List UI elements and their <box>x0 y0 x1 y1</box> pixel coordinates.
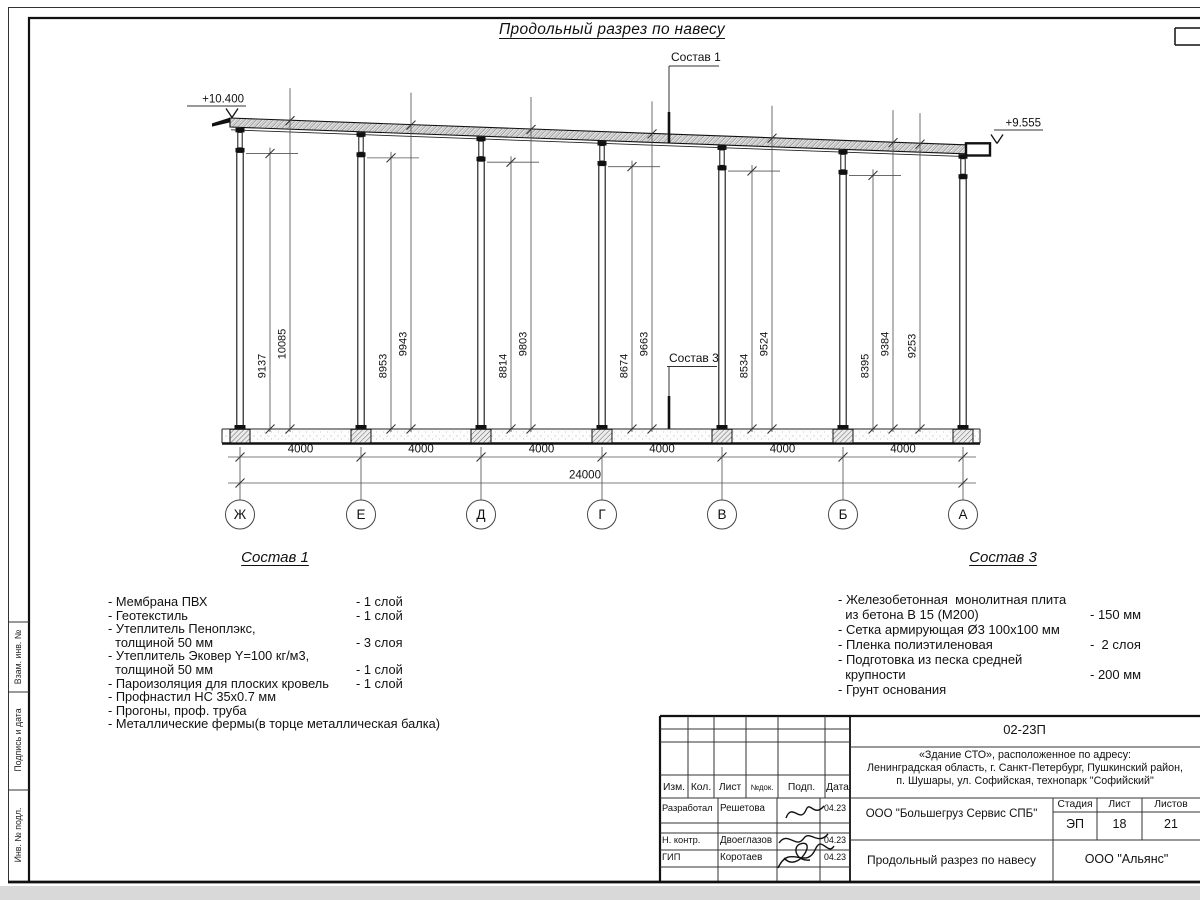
composition-3-title: Состав 3 <box>933 549 1073 566</box>
composition-item-name: - Геотекстиль <box>108 609 478 623</box>
composition-item: - Профнастил НС 35х0.7 мм <box>108 690 478 704</box>
axis-letter: Е <box>356 507 365 522</box>
stamp-column-header: Лист <box>714 779 746 796</box>
bay-dimension-label: 4000 <box>288 444 314 456</box>
axis-letter: Б <box>839 507 848 522</box>
column <box>599 166 605 429</box>
leader-label-sostav1: Состав 1 <box>671 50 721 64</box>
composition-item-name: - Металлические фермы(в торце металличес… <box>108 717 478 731</box>
column <box>237 152 243 429</box>
stamp-column-header: Подп. <box>778 779 825 796</box>
stamp-object-address: «Здание СТО», расположенное по адресу: Л… <box>852 749 1198 788</box>
bay-dimension-label: 4000 <box>408 444 434 456</box>
composition-item: - Железобетонная монолитная плита из бет… <box>838 592 1188 622</box>
elevation-mark-right: +9.555 <box>1006 118 1042 130</box>
composition-item: - Грунт основания <box>838 682 1188 697</box>
footing <box>351 429 371 443</box>
stamp-column-header: №док. <box>746 779 778 796</box>
composition-item: - Пароизоляция для плоских кровель- 1 сл… <box>108 677 478 691</box>
stamp-object-line: п. Шушары, ул. Софийская, технопарк "Соф… <box>852 775 1198 788</box>
composition-item: - Прогоны, проф. труба <box>108 704 478 718</box>
vertical-dimension-label: 8534 <box>739 354 751 378</box>
vertical-dimension-label: 9943 <box>398 332 410 356</box>
composition-item-name: - Грунт основания <box>838 682 1188 697</box>
bay-dimension-label: 4000 <box>649 444 675 456</box>
footing <box>471 429 491 443</box>
stamp-row-date: 04.23 <box>821 835 849 845</box>
composition-item-qty: - 1 слой <box>356 595 403 609</box>
composition-item-qty: - 200 мм <box>1090 667 1141 682</box>
page-title: Продольный разрез по навесу <box>390 21 834 39</box>
column <box>960 179 966 429</box>
stamp-row-role: Разработал <box>662 803 717 813</box>
stamp-object-line: «Здание СТО», расположенное по адресу: <box>852 749 1198 762</box>
stamp-drawing-name: Продольный разрез по навесу <box>850 853 1053 867</box>
composition-item-name: - Прогоны, проф. труба <box>108 704 478 718</box>
axis-letter: А <box>958 507 967 522</box>
roof-package <box>230 118 968 154</box>
margin-label-vzam-inv: Взам. инв. № <box>9 624 28 690</box>
composition-item: - Сетка армирующая Ø3 100х100 мм <box>838 622 1188 637</box>
composition-item: - Подготовка из песка средней крупности-… <box>838 652 1188 682</box>
roof-eave <box>212 118 230 127</box>
stamp-column-header: Кол. <box>688 779 714 796</box>
stamp-sheets-label: Листов <box>1142 799 1200 810</box>
stamp-column-header: Дата <box>825 779 850 796</box>
vertical-dimension-label: 9663 <box>639 332 651 356</box>
composition-1-block: Состав 1 - Мембрана ПВХ- 1 слой- Геотекс… <box>108 549 478 731</box>
footing <box>953 429 973 443</box>
elevation-mark-left: +10.400 <box>202 94 244 106</box>
footing <box>230 429 250 443</box>
vertical-dimension-label: 9253 <box>907 334 919 358</box>
composition-1-list: - Мембрана ПВХ- 1 слой- Геотекстиль- 1 с… <box>108 595 478 731</box>
vertical-dimension-label: 8395 <box>860 354 872 378</box>
stamp-column-header: Изм. <box>660 779 688 796</box>
vertical-dimension-label: 8814 <box>498 354 510 378</box>
composition-item-name: - Мембрана ПВХ <box>108 595 478 609</box>
composition-item-qty: - 3 слоя <box>356 636 403 650</box>
composition-item: - Металлические фермы(в торце металличес… <box>108 717 478 731</box>
composition-item-qty: - 1 слой <box>356 677 403 691</box>
composition-item-qty: - 150 мм <box>1090 607 1141 622</box>
stamp-row-date: 04.23 <box>821 803 849 813</box>
composition-item: - Геотекстиль- 1 слой <box>108 609 478 623</box>
axis-letter: Г <box>598 507 606 522</box>
vertical-dimension-label: 8953 <box>378 354 390 378</box>
composition-3-block: Состав 3 - Железобетонная монолитная пли… <box>838 549 1188 697</box>
footing <box>833 429 853 443</box>
composition-item-qty: - 1 слой <box>356 663 403 677</box>
vertical-dimension-label: 9137 <box>257 354 269 378</box>
vertical-dimension-label: 9384 <box>880 332 892 356</box>
outside-page-area <box>0 886 1200 900</box>
composition-item: - Утеплитель Пеноплэкс, толщиной 50 мм- … <box>108 622 478 649</box>
composition-item-name: - Пароизоляция для плоских кровель <box>108 677 478 691</box>
drawing-sheet: +10.400+9.555Состав 1Состав 391371008589… <box>0 0 1200 900</box>
stamp-row-role: Н. контр. <box>662 835 717 845</box>
axis-letter: В <box>717 507 726 522</box>
stamp-company: ООО "Большегруз Сервис СПБ" <box>850 808 1053 820</box>
vertical-dimension-label: 9803 <box>518 332 530 356</box>
column <box>719 170 725 429</box>
composition-item: - Утеплитель Эковер Y=100 кг/м3, толщино… <box>108 649 478 676</box>
column <box>358 157 364 429</box>
composition-1-title: Состав 1 <box>205 549 345 566</box>
composition-item-name: - Профнастил НС 35х0.7 мм <box>108 690 478 704</box>
composition-3-list: - Железобетонная монолитная плита из бет… <box>838 592 1188 697</box>
composition-item-name: - Утеплитель Пеноплэкс, толщиной 50 мм <box>108 622 478 649</box>
signature <box>784 843 810 862</box>
composition-item-name: - Сетка армирующая Ø3 100х100 мм <box>838 622 1188 637</box>
stamp-row-role: ГИП <box>662 852 717 862</box>
margin-label-podpis-data: Подпись и дата <box>9 694 28 786</box>
column <box>478 161 484 429</box>
vertical-dimension-label: 9524 <box>759 332 771 356</box>
footing <box>712 429 732 443</box>
stamp-doc-code: 02-23П <box>850 722 1199 737</box>
signature <box>786 806 824 818</box>
bay-dimension-label: 4000 <box>529 444 555 456</box>
margin-label-inv-podl: Инв. № подл. <box>9 792 28 878</box>
composition-item-qty: - 1 слой <box>356 609 403 623</box>
vertical-dimension-label: 8674 <box>619 354 631 378</box>
stamp-org: ООО "Альянс" <box>1053 852 1200 866</box>
vertical-dimension-label: 10085 <box>277 329 289 360</box>
stamp-stage-value: ЭП <box>1053 817 1097 831</box>
bay-dimension-label: 4000 <box>770 444 796 456</box>
footing <box>592 429 612 443</box>
axis-letter: Ж <box>234 507 247 522</box>
composition-item: - Пленка полиэтиленовая- 2 слоя <box>838 637 1188 652</box>
stamp-row-name: Решетова <box>720 803 776 814</box>
stamp-row-date: 04.23 <box>821 852 849 862</box>
stamp-stage-label: Стадия <box>1053 799 1097 810</box>
column <box>840 174 846 429</box>
stamp-sheets-value: 21 <box>1142 817 1200 831</box>
stamp-sheet-value: 18 <box>1097 817 1142 831</box>
leader-label-sostav3: Состав 3 <box>669 351 719 365</box>
stamp-sheet-label: Лист <box>1097 799 1142 810</box>
composition-item-qty: - 2 слоя <box>1090 637 1141 652</box>
total-dimension-label: 24000 <box>569 470 601 482</box>
bay-dimension-label: 4000 <box>890 444 916 456</box>
stamp-object-line: Ленинградская область, г. Санкт-Петербур… <box>852 762 1198 775</box>
composition-item: - Мембрана ПВХ- 1 слой <box>108 595 478 609</box>
stamp-row-name: Двоеглазов <box>720 835 776 846</box>
roof-edge-beam <box>966 143 990 155</box>
stamp-row-name: Коротаев <box>720 852 776 863</box>
axis-letter: Д <box>476 507 485 522</box>
composition-item-name: - Утеплитель Эковер Y=100 кг/м3, толщино… <box>108 649 478 676</box>
